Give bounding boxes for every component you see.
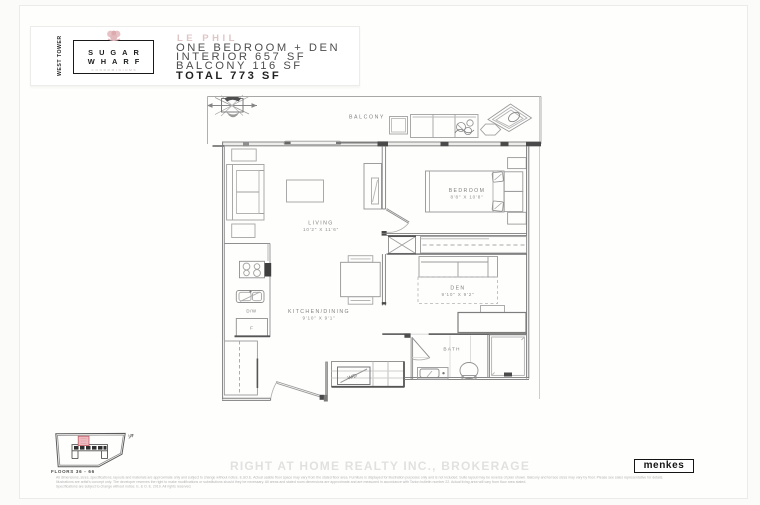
svg-text:BALCONY: BALCONY <box>349 115 385 121</box>
svg-text:10'2" X 11'6": 10'2" X 11'6" <box>303 227 339 232</box>
svg-text:9'10" X 9'2": 9'10" X 9'2" <box>441 292 474 297</box>
svg-text:D/W: D/W <box>246 308 257 313</box>
svg-text:KITCHEN/DINING: KITCHEN/DINING <box>288 309 350 315</box>
svg-text:LIVING: LIVING <box>308 221 333 227</box>
svg-text:DEN: DEN <box>450 286 465 292</box>
svg-text:F: F <box>250 326 253 331</box>
svg-text:BATH: BATH <box>443 347 460 353</box>
svg-text:BEDROOM: BEDROOM <box>449 188 486 194</box>
svg-text:8'8" X 10'8": 8'8" X 10'8" <box>450 195 483 200</box>
svg-text:9'10" X 9'1": 9'10" X 9'1" <box>302 315 335 320</box>
svg-text:N: N <box>128 434 131 438</box>
